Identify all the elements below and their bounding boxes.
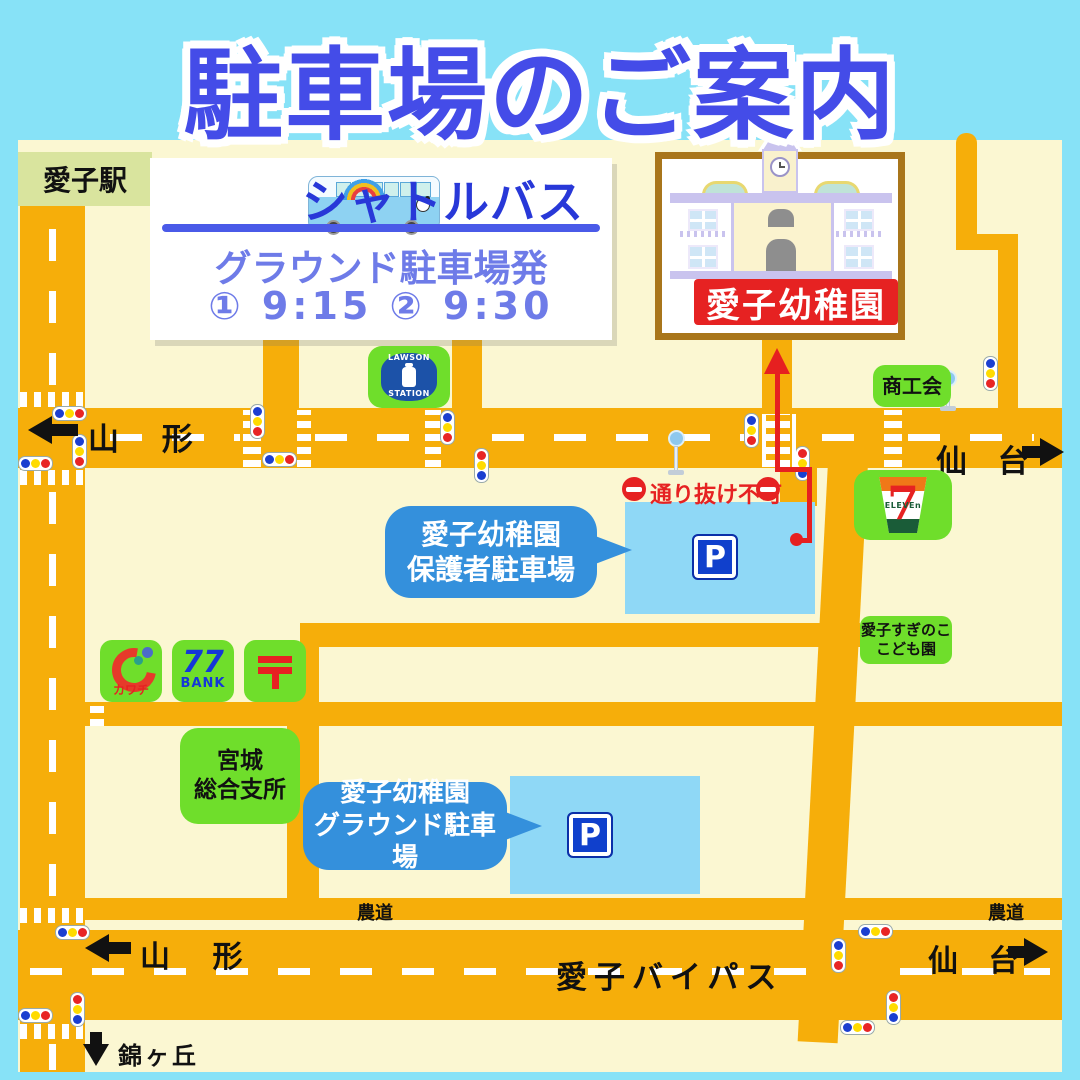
bank-number: 77	[182, 649, 224, 676]
kindergarten-building-illustration	[662, 159, 898, 279]
window	[844, 245, 874, 269]
traffic-light-icon	[72, 434, 87, 469]
parking-p: P	[704, 540, 726, 575]
traffic-light-icon	[18, 1008, 53, 1023]
shuttle-title: シャトルバス	[302, 166, 584, 232]
77-bank-logo: 77 BANK	[172, 640, 234, 702]
place-label: 宮城	[217, 747, 263, 776]
crosswalk-marking	[884, 410, 902, 467]
crosswalk-marking	[297, 410, 311, 467]
crosswalk-marking	[20, 392, 85, 407]
road-label-yamagata-top: 山 形	[88, 414, 209, 459]
balcony-rail	[680, 231, 726, 237]
kindergarten-signboard: 愛子幼稚園	[655, 152, 905, 340]
crosswalk-marking	[90, 703, 104, 726]
traffic-light-icon	[744, 413, 759, 448]
bubble-text: グラウンド駐車場	[303, 810, 507, 875]
arrow-right-sendai-top	[1040, 438, 1064, 466]
road-right-lower	[998, 234, 1018, 412]
kindergarten-name-banner: 愛子幼稚園	[694, 279, 898, 325]
roof-band	[670, 193, 892, 203]
lawson-text: LAWSON	[381, 353, 437, 363]
place-shoukoukai: 商工会	[873, 365, 951, 407]
traffic-light-icon	[474, 448, 489, 483]
bubble-text: 愛子幼稚園	[340, 777, 470, 810]
place-suginoko: 愛子すぎのこ こども園	[860, 616, 952, 664]
traffic-light-icon	[858, 924, 893, 939]
arrow-down-nishikigaoka	[83, 1044, 109, 1066]
attic-vent	[768, 209, 794, 227]
road-label-yamagata-bottom: 山 形	[140, 932, 258, 976]
traffic-light-icon	[262, 452, 297, 467]
kawachi-text: カワチ	[100, 683, 162, 698]
place-label: 商工会	[882, 374, 942, 399]
road-centerline-dashes	[492, 434, 754, 441]
crosswalk-marking	[425, 410, 441, 467]
no-entry-icon	[756, 477, 780, 501]
bubble-ground-parking: 愛子幼稚園 グラウンド駐車場	[303, 782, 507, 870]
traffic-light-icon	[831, 938, 846, 973]
window	[688, 209, 718, 231]
bank-label: BANK	[181, 676, 226, 692]
shuttle-times: ① 9:15 ② 9:30	[150, 284, 612, 328]
traffic-light-icon	[983, 356, 998, 391]
route-line	[775, 372, 780, 470]
eleven-text: ELEVEn	[876, 501, 930, 511]
traffic-light-icon	[886, 990, 901, 1025]
window	[688, 245, 718, 269]
traffic-light-icon	[440, 410, 455, 445]
route-line	[807, 467, 812, 543]
arrow-bar	[50, 424, 78, 436]
crosswalk-marking	[20, 908, 85, 923]
lawson-shield-icon: LAWSON STATION	[381, 353, 437, 401]
post-office-logo	[244, 640, 306, 702]
clock-icon	[770, 157, 790, 177]
kindergarten-name: 愛子幼稚園	[706, 278, 886, 327]
seven-eleven-logo: 7 ELEVEn	[854, 470, 952, 540]
shuttle-info-box: シャトルバス グラウンド駐車場発 ① 9:15 ② 9:30	[150, 158, 612, 340]
road-centerline-dashes	[49, 492, 56, 896]
traffic-light-icon	[840, 1020, 875, 1035]
arrow-left-yamagata-bottom	[85, 934, 109, 962]
road-label-farm-left: 農道	[357, 899, 393, 925]
place-label: 総合支所	[194, 776, 286, 805]
road-centerline-dashes	[49, 1044, 56, 1070]
road-farm	[80, 898, 1062, 920]
kawachi-logo: カワチ	[100, 640, 162, 702]
bubble-text: 愛子幼稚園	[421, 517, 561, 552]
lawson-text: STATION	[381, 389, 437, 399]
place-label: こども園	[876, 640, 936, 659]
parking-p: P	[579, 818, 601, 853]
arrow-right-sendai-bottom	[1024, 938, 1048, 966]
parking-sign-parent: P	[692, 534, 738, 580]
station-box: 愛子駅	[18, 152, 152, 206]
road-label-sendai-bottom: 仙 台	[928, 936, 1028, 980]
kawachi-dot-icon	[142, 647, 153, 658]
place-miyagi-branch: 宮城 総合支所	[180, 728, 300, 824]
road-stub-center	[263, 336, 299, 410]
traffic-light-icon	[52, 406, 87, 421]
page-title: 駐車場のご案内	[0, 14, 1080, 159]
door	[766, 239, 796, 273]
road-label-sendai-top: 仙 台	[936, 436, 1039, 481]
bubble-tail	[590, 534, 632, 566]
road-label-bypass: 愛子バイパス	[556, 952, 783, 997]
seven-eleven-cup-icon: 7 ELEVEn	[876, 477, 930, 533]
balcony-rail	[836, 231, 882, 237]
place-label: 愛子すぎのこ	[861, 621, 951, 640]
arrow-left-yamagata-top	[28, 416, 52, 444]
road-centerline-dashes	[315, 434, 423, 441]
lawson-logo: LAWSON STATION	[368, 346, 450, 408]
post-mark-icon	[255, 651, 295, 691]
crosswalk-marking	[20, 470, 85, 485]
station-label: 愛子駅	[43, 159, 127, 199]
window	[844, 209, 874, 231]
road-mid-lower	[85, 702, 1062, 726]
road-centerline-dashes	[822, 434, 880, 441]
traffic-light-icon	[18, 456, 53, 471]
traffic-light-icon	[70, 992, 85, 1027]
traffic-light-icon	[250, 404, 265, 439]
road-label-nishikigaoka: 錦ヶ丘	[118, 1036, 199, 1071]
bubble-text: 保護者駐車場	[407, 552, 575, 587]
no-entry-icon	[622, 477, 646, 501]
parking-guide-poster: P P 山 形 仙 台 山 形 仙 台 愛子バイパス 錦ヶ丘 農道 農道 通り抜…	[0, 0, 1080, 1080]
bubble-parent-parking: 愛子幼稚園 保護者駐車場	[385, 506, 597, 598]
bubble-tail	[500, 810, 542, 842]
arrow-bar	[107, 942, 131, 954]
route-start-dot	[790, 533, 803, 546]
milk-jug-icon	[402, 367, 416, 387]
road-label-farm-right: 農道	[988, 899, 1024, 925]
road-mid-upper	[300, 623, 860, 647]
road-stub-lawson	[452, 336, 482, 412]
route-arrowhead	[764, 348, 790, 374]
parking-sign-ground: P	[567, 812, 613, 858]
road-centerline-dashes	[49, 215, 56, 385]
kawachi-dot-icon	[134, 656, 143, 665]
shuttle-underline	[162, 224, 600, 232]
